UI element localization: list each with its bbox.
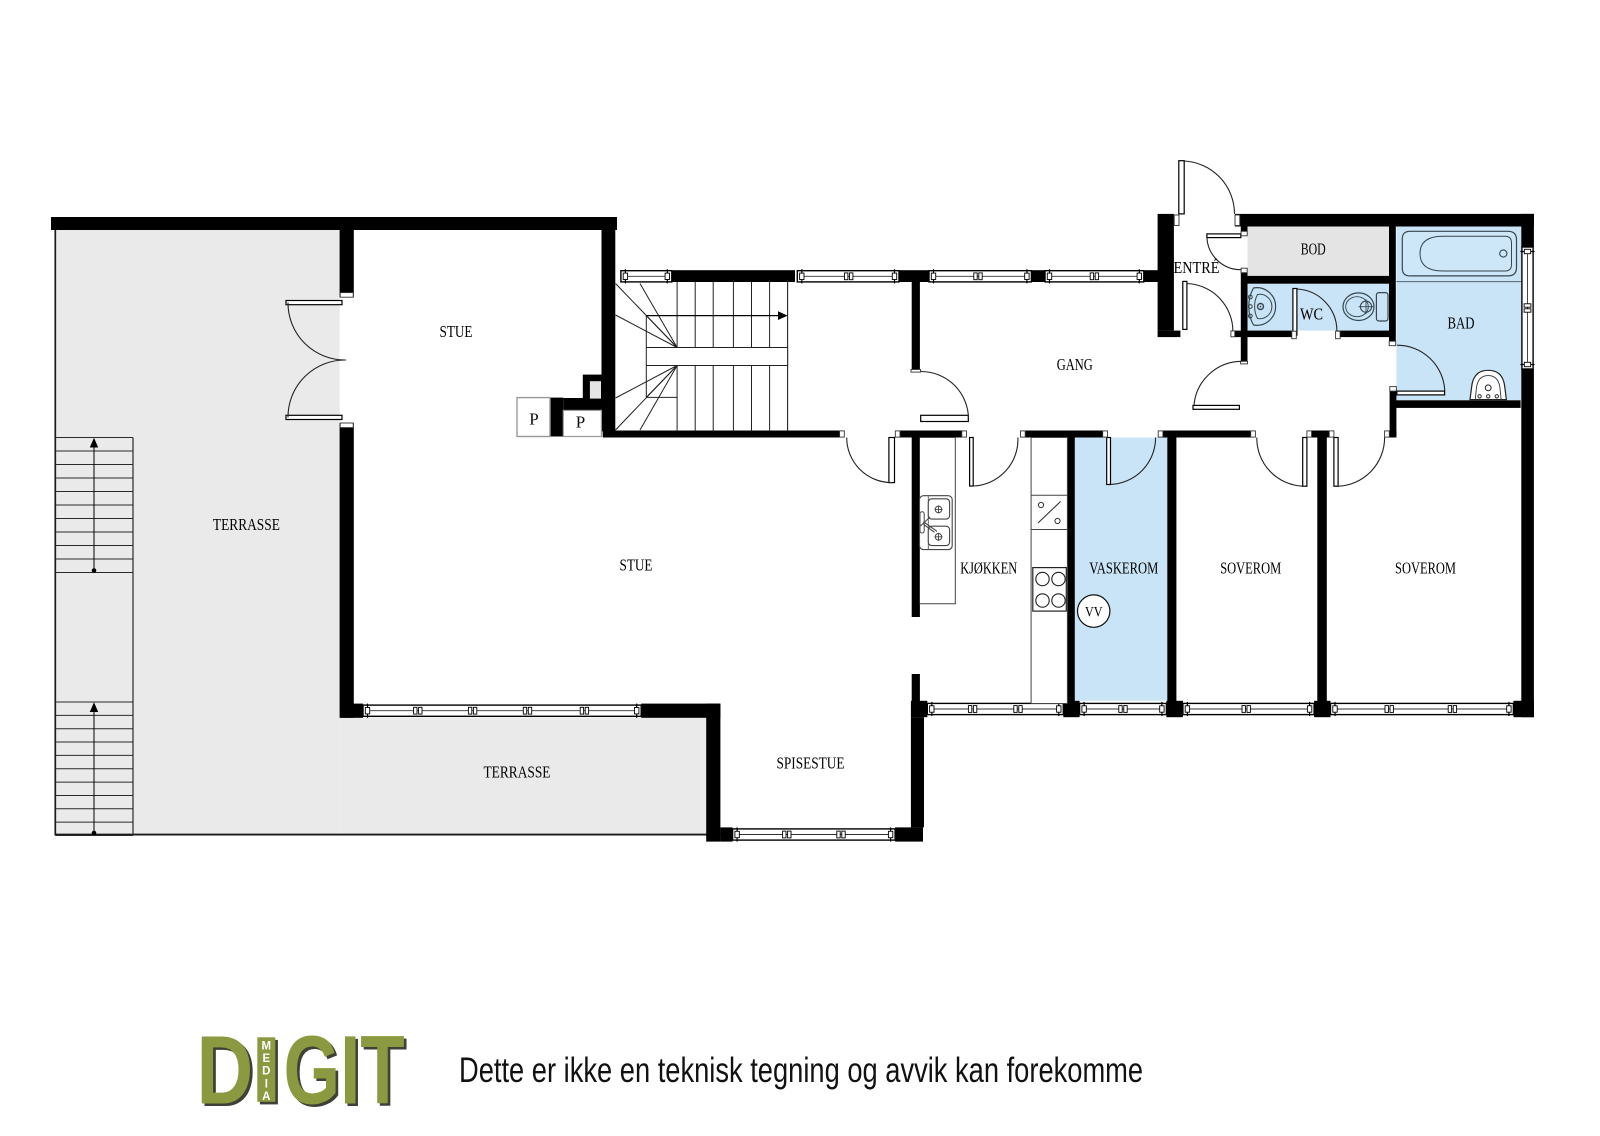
svg-text:GANG: GANG xyxy=(1057,355,1093,374)
svg-text:D: D xyxy=(262,1066,270,1078)
svg-text:BOD: BOD xyxy=(1301,240,1326,259)
svg-text:SOVEROM: SOVEROM xyxy=(1395,559,1456,578)
svg-text:D: D xyxy=(197,1015,254,1124)
svg-text:M: M xyxy=(262,1041,272,1053)
svg-text:ENTRÉ: ENTRÉ xyxy=(1174,258,1220,277)
svg-text:KJØKKEN: KJØKKEN xyxy=(960,559,1017,578)
svg-text:STUE: STUE xyxy=(440,322,473,341)
svg-text:SPISESTUE: SPISESTUE xyxy=(777,754,845,773)
svg-text:TERRASSE: TERRASSE xyxy=(484,763,551,782)
svg-text:P: P xyxy=(576,413,585,432)
svg-text:I: I xyxy=(265,1078,268,1090)
svg-text:SOVEROM: SOVEROM xyxy=(1220,559,1281,578)
svg-text:Dette er ikke en teknisk tegni: Dette er ikke en teknisk tegning og avvi… xyxy=(459,1051,1143,1090)
svg-text:E: E xyxy=(262,1053,270,1065)
svg-text:WC: WC xyxy=(1300,305,1323,324)
svg-text:VV: VV xyxy=(1085,604,1103,620)
svg-text:VASKEROM: VASKEROM xyxy=(1089,559,1158,578)
svg-text:A: A xyxy=(262,1091,270,1103)
svg-text:TERRASSE: TERRASSE xyxy=(213,515,280,534)
svg-text:P: P xyxy=(529,410,538,429)
svg-text:BAD: BAD xyxy=(1448,314,1475,333)
svg-text:GIT: GIT xyxy=(284,1016,405,1125)
svg-text:STUE: STUE xyxy=(620,556,653,575)
